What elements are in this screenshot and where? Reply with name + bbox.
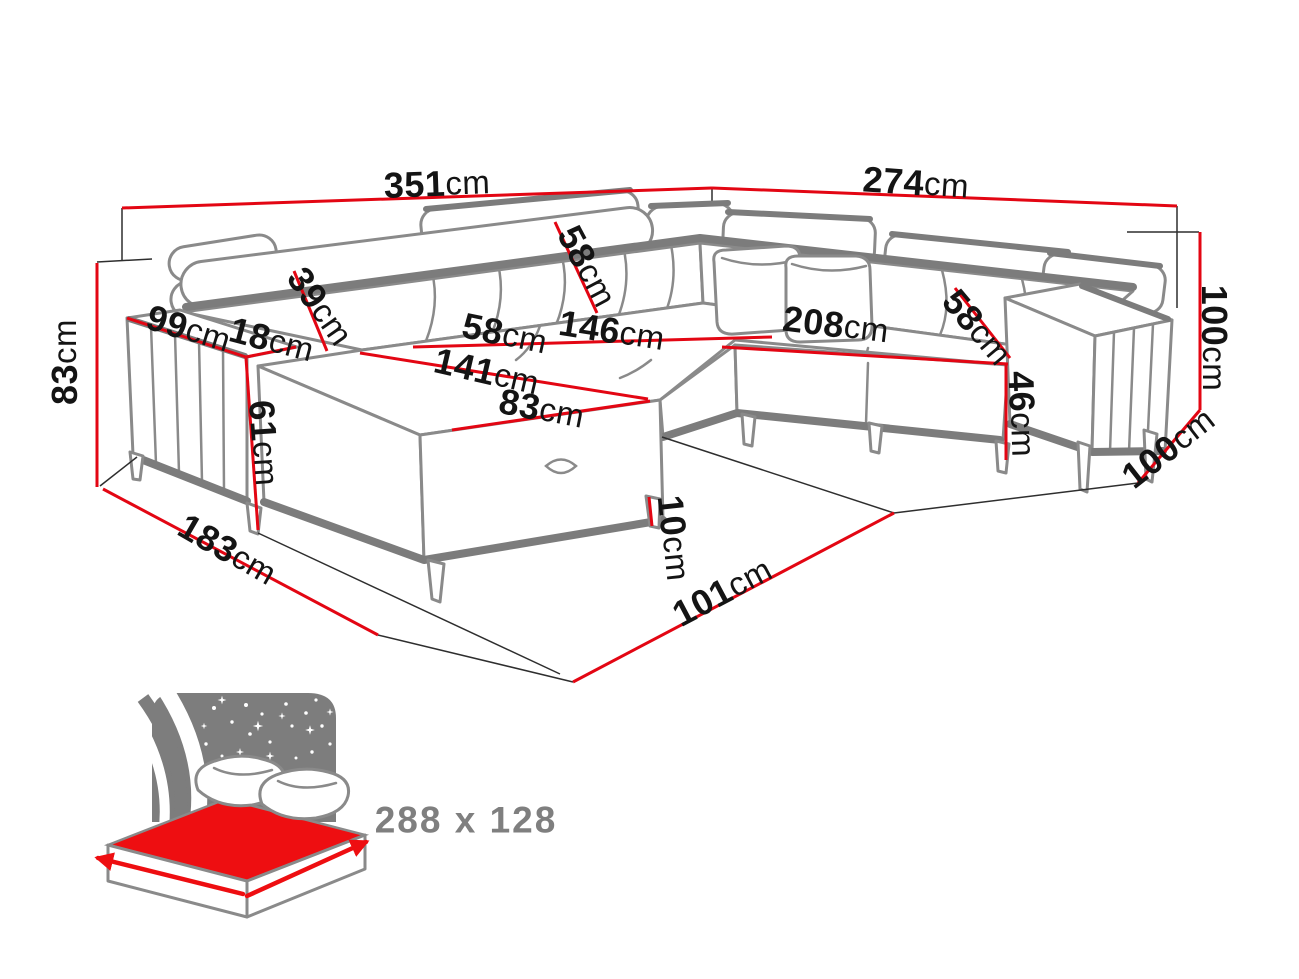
wall-left-base-line xyxy=(97,259,152,262)
sleeping-area-size-label: 288 x 128 xyxy=(375,800,558,841)
dim-label-left-side-height: 83cm xyxy=(44,319,85,405)
dim-label-leg-height: 10cm xyxy=(650,493,700,583)
sofa-bed-sleeping-surface-icon: 288 x 128 xyxy=(98,688,557,917)
dim-label-wall-side-left-width: 351cm xyxy=(383,161,491,206)
sofa-dimension-diagram: 351cm 274cm 83cm 100cm 99cm 18cm 39cm 58… xyxy=(0,0,1299,974)
dim-label-left-side-depth: 183cm xyxy=(172,505,285,594)
mattress-icon xyxy=(98,756,366,917)
dim-label-right-side-height: 100cm xyxy=(1195,285,1236,392)
dim-label-left-arm-front-height: 61cm xyxy=(242,399,289,488)
dim-label-seat-height: 46cm xyxy=(1001,370,1045,457)
dim-label-wall-side-right-width: 274cm xyxy=(861,158,970,206)
